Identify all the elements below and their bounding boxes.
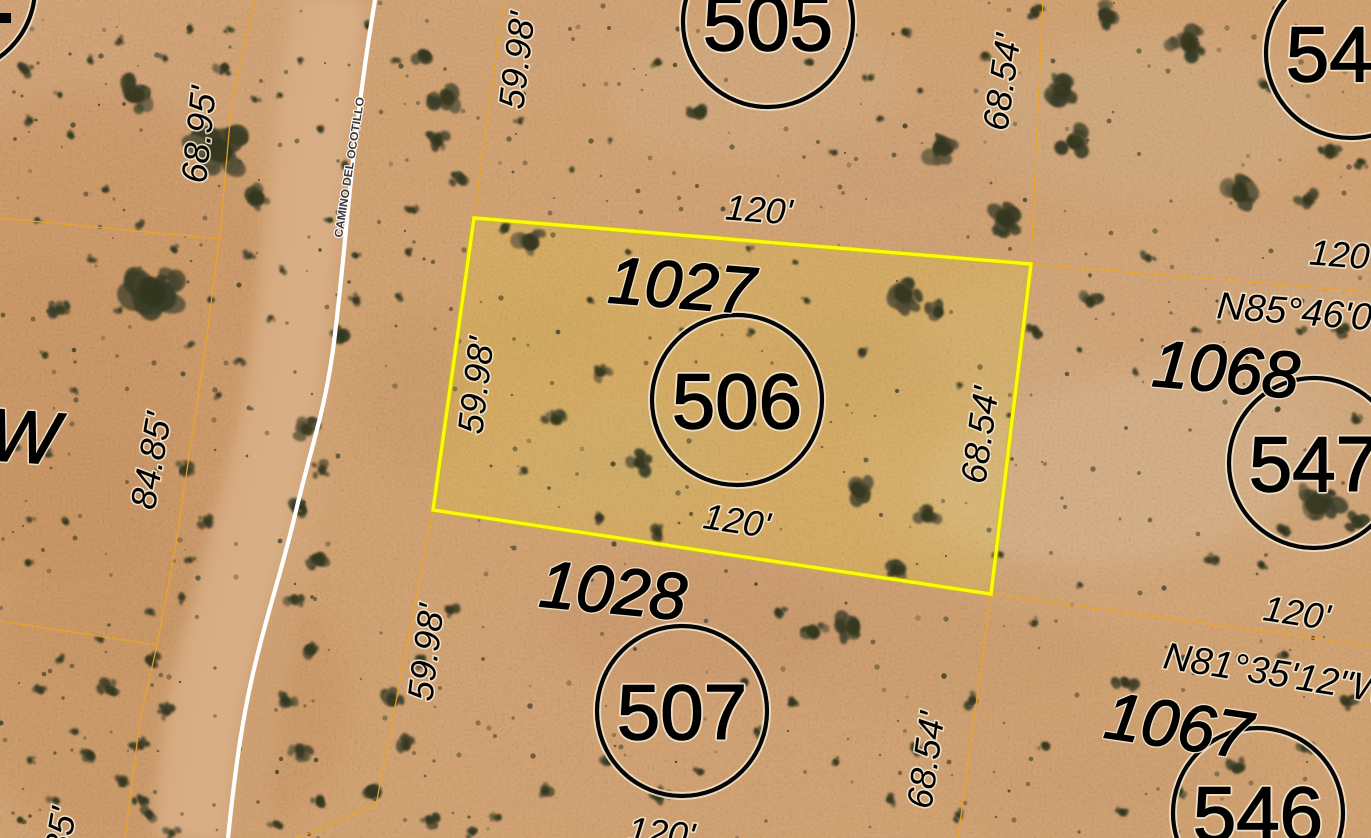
svg-text:1028: 1028 [537,546,691,634]
svg-text:507: 507 [617,668,747,756]
svg-text:546: 546 [1193,770,1323,838]
svg-text:1068: 1068 [1150,326,1303,413]
svg-text:1027: 1027 [606,242,760,327]
svg-text:548: 548 [1286,10,1371,98]
svg-text:506: 506 [672,357,802,445]
svg-text:120': 120' [1308,231,1371,277]
svg-text:505: 505 [703,0,833,67]
svg-text:547: 547 [1249,420,1371,508]
svg-text:120': 120' [724,186,795,232]
